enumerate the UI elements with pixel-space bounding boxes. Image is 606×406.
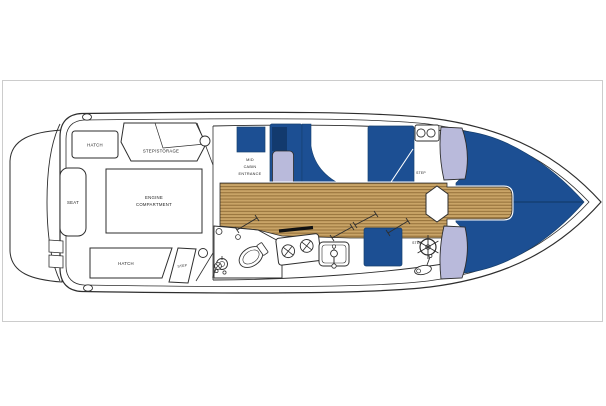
galley-sink-icon [319, 242, 349, 268]
head-fitting [236, 235, 241, 240]
cleat-icon-top [83, 114, 92, 120]
table [426, 186, 448, 222]
stove-icon [276, 233, 322, 265]
head-vent [216, 229, 222, 235]
label-engine-2: COMPARTMENT [136, 202, 172, 207]
label-hatch-bottom: HATCH [118, 261, 134, 266]
bow-seat-bottom [440, 226, 467, 279]
deck-hatch-bottom [199, 249, 208, 258]
label-mid-3: ENTRANCE [239, 172, 262, 176]
dinette-seat [368, 126, 414, 189]
label-mid-2: CABIN [244, 165, 257, 169]
label-seat: SEAT [67, 200, 79, 205]
label-step-storage: STEP/STORAGE [143, 149, 179, 154]
locker-cushion [237, 127, 265, 152]
label-step-bow-top: STEP [416, 171, 426, 175]
label-step-bow-bottom: STEP [412, 241, 422, 245]
label-hatch-top: HATCH [87, 143, 103, 148]
deck-hatch-top [200, 136, 210, 146]
galley-seat [364, 228, 402, 266]
mid-seat-back [272, 127, 287, 151]
deck-plan-drawing: HATCH STEP/STORAGE SEAT ENGINE COMPARTME… [0, 0, 606, 406]
boat-deck-plan: HATCH STEP/STORAGE SEAT ENGINE COMPARTME… [0, 0, 606, 406]
label-mid-1: MID [246, 158, 254, 162]
engine-compartment [106, 169, 202, 233]
cleat-icon-bottom [84, 285, 93, 291]
bow-seat-top [440, 127, 467, 180]
instrument-panel-icon [415, 125, 439, 141]
label-engine-1: ENGINE [145, 195, 163, 200]
step-storage [121, 123, 206, 161]
